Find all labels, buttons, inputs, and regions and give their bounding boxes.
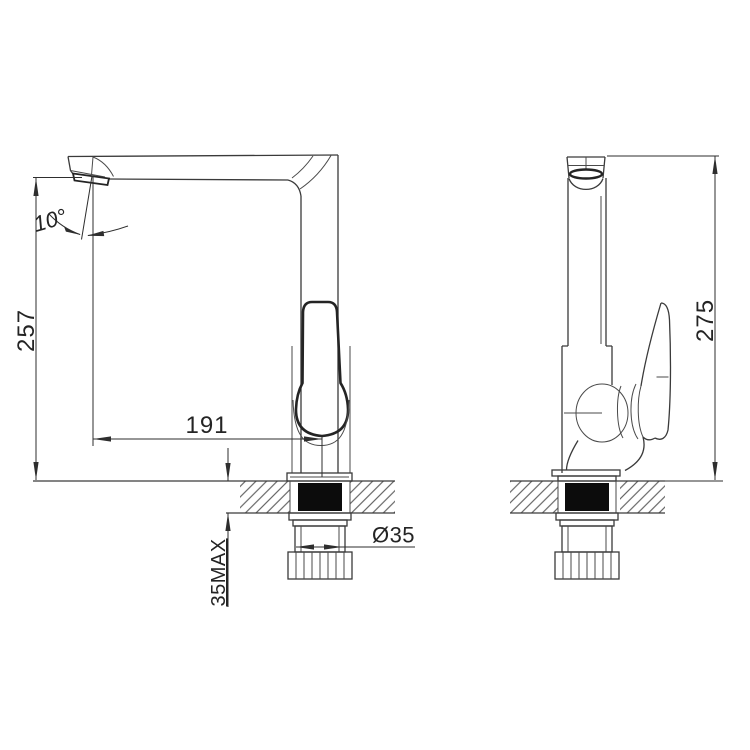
countertop-hatch-left (510, 482, 558, 513)
side-body-cartridge (562, 346, 644, 473)
countertop-hatch-right (350, 482, 395, 513)
dim-spout-angle-10deg: 10° (30, 176, 128, 446)
side-base-countertop (510, 470, 665, 513)
dim-overall-height-275: 275 (607, 156, 723, 481)
front-under-counter-assembly (288, 513, 352, 579)
dim-counter-thickness-35max: 35MAX (208, 448, 231, 607)
faucet-technical-drawing: 257 10° 191 35MAX (0, 0, 750, 750)
dim-35max-label: 35MAX (208, 538, 230, 606)
countertop-hatch-left (240, 482, 290, 513)
dimensions: 257 10° 191 35MAX (13, 156, 723, 607)
dim-dia35-label: Ø35 (372, 523, 415, 548)
front-view (33, 155, 395, 579)
aerator-end (570, 170, 602, 179)
dim-191-label: 191 (185, 412, 228, 439)
side-view (510, 157, 670, 579)
side-handle-lever (641, 303, 670, 440)
dim-275-label: 275 (692, 299, 719, 342)
mounting-shank-section (298, 483, 342, 511)
dim-spout-reach-191: 191 (93, 412, 322, 477)
side-under-counter-assembly (555, 513, 619, 579)
dim-257-label: 257 (13, 309, 40, 352)
mounting-shank-section (565, 483, 609, 511)
countertop-hatch-right (620, 482, 665, 513)
faucet-technical-drawing-page: 257 10° 191 35MAX (0, 0, 750, 750)
side-spout-column (567, 157, 606, 346)
front-base-countertop (33, 473, 395, 513)
